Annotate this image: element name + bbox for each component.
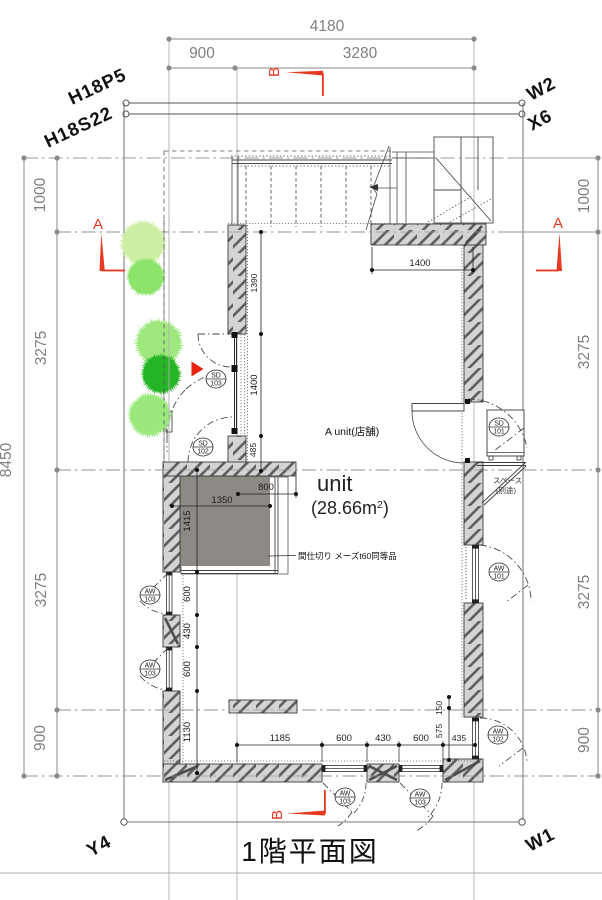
svg-text:3275: 3275 [33,573,50,607]
svg-text:AW: AW [415,792,426,799]
svg-text:AW: AW [145,663,156,670]
svg-text:4180: 4180 [310,18,345,35]
svg-text:103: 103 [144,671,156,678]
svg-text:600: 600 [336,733,352,744]
svg-text:103: 103 [144,597,156,604]
svg-text:101: 101 [493,429,505,436]
svg-text:430: 430 [375,733,391,744]
svg-text:(別途): (別途) [496,485,516,495]
svg-text:435: 435 [452,733,466,743]
svg-text:3275: 3275 [576,575,593,609]
svg-text:101: 101 [493,574,505,581]
svg-text:B: B [266,67,283,77]
svg-text:AW: AW [494,566,505,573]
svg-text:103: 103 [414,800,426,807]
svg-text:SD: SD [211,373,221,380]
svg-text:1000: 1000 [32,177,49,212]
svg-text:1400: 1400 [409,258,430,269]
svg-text:AW: AW [493,729,504,736]
svg-text:102: 102 [197,449,209,456]
svg-text:1130: 1130 [182,722,193,742]
svg-text:102: 102 [492,737,504,744]
svg-text:1390: 1390 [249,273,259,292]
svg-text:103: 103 [339,799,351,806]
svg-text:150: 150 [434,701,444,715]
svg-text:SD: SD [198,441,208,448]
svg-text:8450: 8450 [0,442,15,477]
svg-text:A unit(店舗): A unit(店舗) [325,425,379,438]
svg-text:AW: AW [340,791,351,798]
svg-text:1000: 1000 [576,178,593,213]
svg-text:1185: 1185 [270,733,290,744]
svg-text:A: A [93,216,103,233]
svg-text:間仕切り メーズt60同等品: 間仕切り メーズt60同等品 [298,551,397,561]
svg-text:430: 430 [182,623,193,639]
svg-text:3280: 3280 [343,45,378,62]
svg-text:A: A [553,215,563,232]
svg-text:800: 800 [258,482,274,493]
svg-text:1415: 1415 [182,510,193,531]
svg-text:900: 900 [32,725,49,751]
svg-text:600: 600 [413,733,429,744]
svg-text:600: 600 [182,661,193,677]
svg-text:900: 900 [576,727,593,753]
svg-text:3275: 3275 [33,331,50,365]
svg-text:1階平面図: 1階平面図 [241,836,379,867]
svg-text:SD: SD [494,421,504,428]
svg-text:900: 900 [189,45,215,62]
svg-text:3275: 3275 [576,335,593,369]
svg-text:575: 575 [434,724,444,738]
svg-text:unit: unit [317,471,352,496]
svg-text:600: 600 [182,586,193,602]
svg-text:485: 485 [248,443,258,457]
svg-text:B: B [269,810,286,820]
svg-text:AW: AW [145,589,156,596]
svg-text:1400: 1400 [249,374,260,395]
svg-text:103: 103 [210,381,222,388]
svg-text:1350: 1350 [211,495,232,506]
svg-text:スペース: スペース [493,476,522,485]
